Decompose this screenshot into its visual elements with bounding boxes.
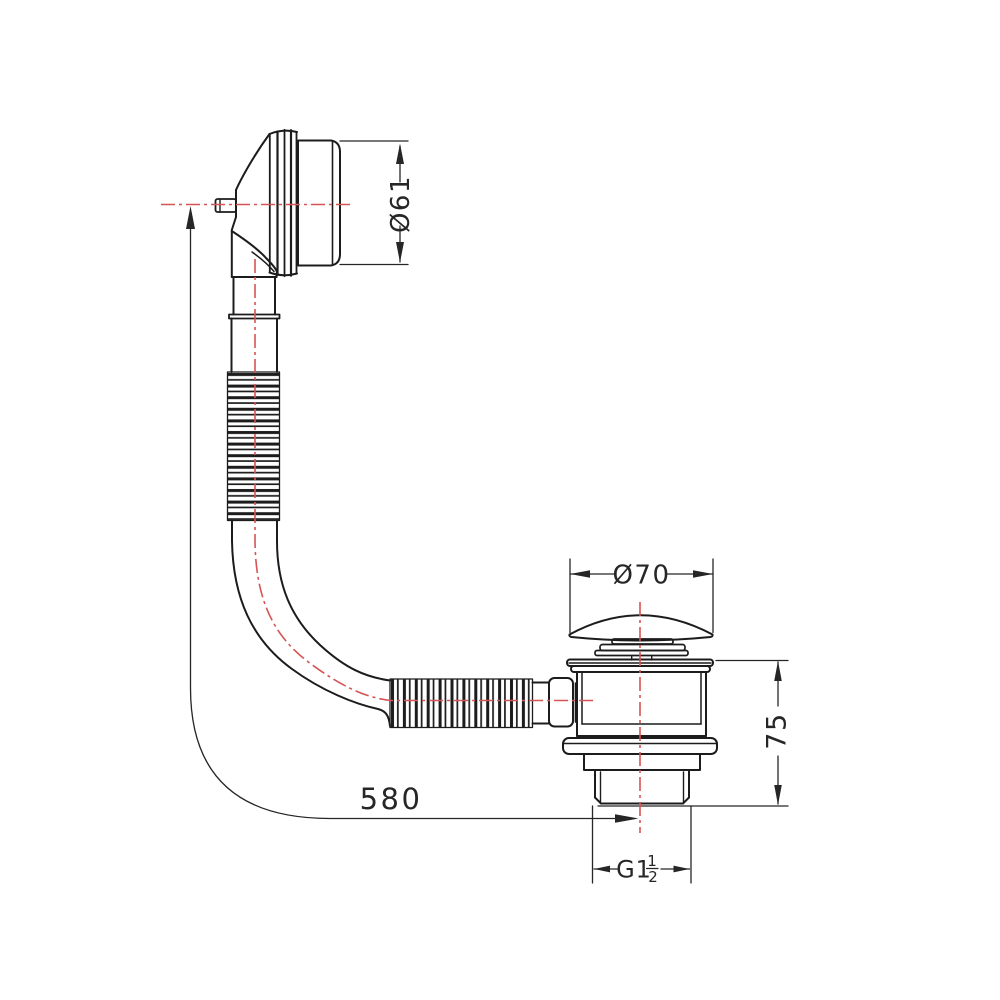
arrow-up-75 xyxy=(774,661,782,681)
arrow-right-d70 xyxy=(693,570,713,578)
arrow-down-d61 xyxy=(396,242,404,263)
overflow-seal-bezel xyxy=(270,130,298,276)
waste-step xyxy=(584,754,700,770)
part-outlines xyxy=(216,130,718,804)
dimension-labels: Ø61 Ø70 75 580 G1 1 2 xyxy=(360,175,793,886)
centerline-hose xyxy=(255,259,597,701)
bath-filler-waste-drawing: Ø61 Ø70 75 580 G1 1 2 xyxy=(0,0,1000,1000)
overflow-head xyxy=(216,130,341,277)
dim-label-hose-length: 580 xyxy=(360,782,423,816)
technical-drawing-canvas: Ø61 Ø70 75 580 G1 1 2 xyxy=(0,0,1000,1000)
arrow-left-d70 xyxy=(570,570,590,578)
plug-dome-cap xyxy=(569,615,712,640)
arrow-up-580 xyxy=(186,206,195,229)
hose-bend-inner xyxy=(277,541,390,681)
dim-label-thread-denominator: 2 xyxy=(648,868,658,886)
arrow-down-75 xyxy=(774,785,782,805)
arrow-right-thread xyxy=(674,866,690,873)
corrugated-section-vertical xyxy=(228,372,280,521)
arrow-up-d61 xyxy=(396,144,404,165)
dim-label-plug-diameter: Ø70 xyxy=(612,561,670,591)
dim-waste-height-lines xyxy=(598,661,788,807)
hose-bend-outer xyxy=(232,541,390,726)
waste-threaded-tail xyxy=(595,770,689,804)
dim-label-overflow-diameter: Ø61 xyxy=(386,175,416,233)
hose-locknut xyxy=(549,678,573,727)
flexible-hose xyxy=(228,372,576,728)
clicker-discs xyxy=(595,639,688,660)
overflow-pin xyxy=(216,199,237,212)
dim-label-waste-height: 75 xyxy=(761,712,792,749)
overflow-cap xyxy=(298,141,340,266)
waste-body xyxy=(577,672,706,736)
corrugated-section-horizontal xyxy=(390,679,533,728)
arrow-left-thread xyxy=(594,866,610,873)
arrow-right-580 xyxy=(615,814,639,823)
